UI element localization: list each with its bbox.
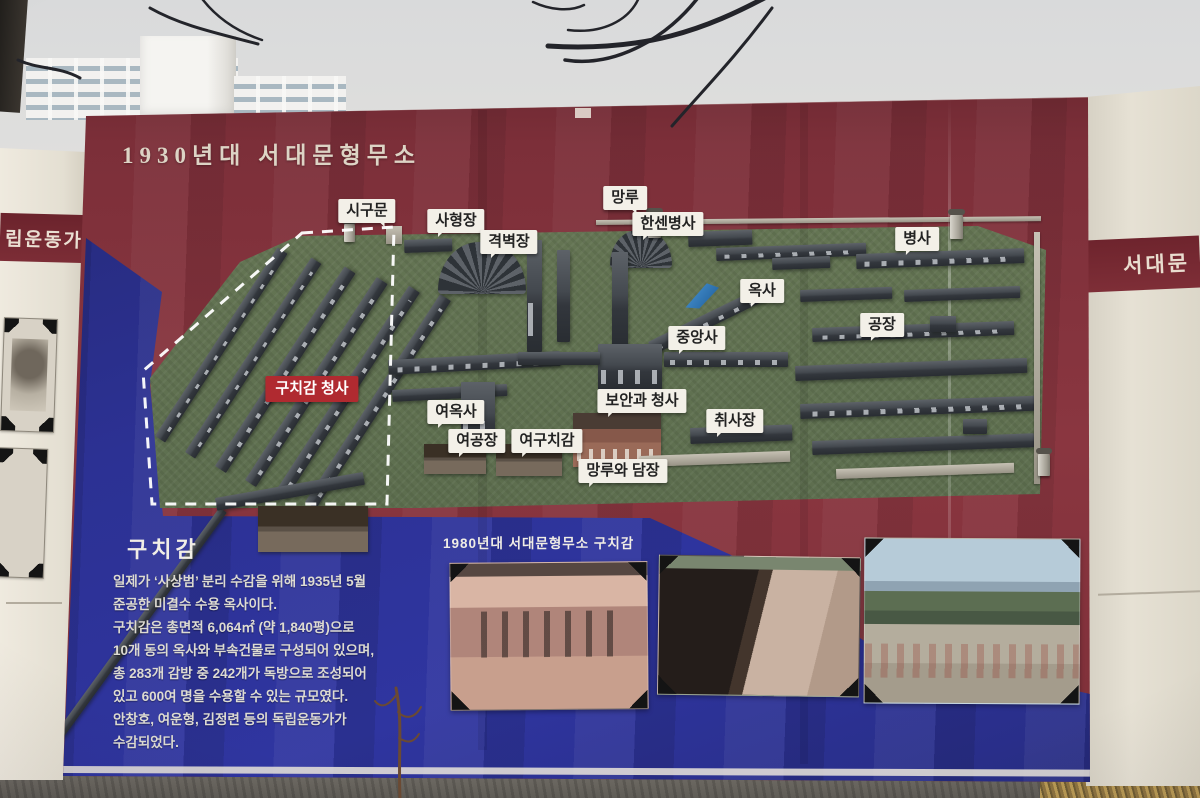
right-sign-title: 서대문 <box>1122 247 1190 280</box>
map-label: 중앙사 <box>668 326 725 350</box>
map-building <box>772 256 830 270</box>
info-paragraph: 일제가 ‘사상범’ 분리 수감을 위해 1935년 5월 준공한 미결수 수용 … <box>113 570 443 754</box>
right-sign-title-band: 서대문 <box>1085 236 1200 293</box>
info-line: 준공한 미결수 수용 옥사이다. <box>113 593 443 616</box>
historic-photo-aerial <box>864 537 1081 704</box>
map-label: 옥사 <box>740 279 784 303</box>
central-hall-building <box>598 344 662 390</box>
billboard: 1930년대 서대문형무소 <box>0 0 1200 798</box>
banner-clip <box>575 108 591 118</box>
map-label: 망루 <box>603 186 647 210</box>
scene-photo: 립운동가 서대문 1930년대 서대문형무소 <box>0 0 1200 798</box>
map-label: 취사장 <box>706 409 763 433</box>
info-line: 있고 600여 명을 수용할 수 있는 규모였다. <box>113 685 443 708</box>
map-label: 한센병사 <box>632 212 703 236</box>
historic-photo-wall <box>657 555 861 698</box>
right-sign-panel <box>1086 0 1200 798</box>
archival-photo <box>0 447 48 579</box>
watchtower <box>344 222 355 242</box>
photo-corner-mounts <box>1 318 57 432</box>
map-label: 사형장 <box>427 209 484 233</box>
info-line: 안창호, 여운형, 김정련 등의 독립운동가가 <box>113 708 443 731</box>
historic-photo-courtyard <box>449 561 648 711</box>
info-line: 구치감은 총면적 6,064㎡ (약 1,840평)으로 <box>113 616 443 639</box>
info-line: 10개 동의 옥사와 부속건물로 구성되어 있으며, <box>113 639 443 662</box>
info-line: 일제가 ‘사상범’ 분리 수감을 위해 1935년 5월 <box>113 570 443 593</box>
map-label: 망루와 담장 <box>578 459 667 483</box>
watchtower <box>950 213 963 239</box>
map-building <box>557 250 570 342</box>
map-building <box>518 352 600 365</box>
map-label: 보안과 청사 <box>597 389 686 413</box>
apartment-roof-tower <box>140 36 236 120</box>
photo-corner-mounts <box>0 448 47 578</box>
photo-corner-mounts <box>658 556 860 697</box>
map-building <box>258 506 368 552</box>
map-building <box>612 252 628 347</box>
billboard-title: 1930년대 서대문형무소 <box>122 136 421 170</box>
watchtower <box>1038 452 1050 476</box>
map-label: 격벽장 <box>480 230 537 254</box>
map-label: 시구문 <box>338 199 395 223</box>
left-sign-title-band: 립운동가 <box>0 213 88 263</box>
photo-section-caption: 1980년대 서대문형무소 구치감 <box>443 532 634 552</box>
archival-photo <box>0 317 58 433</box>
tree-trunk <box>0 0 28 113</box>
left-sign-title: 립운동가 <box>5 223 84 252</box>
map-label: 여옥사 <box>427 400 484 424</box>
map-building <box>930 316 956 332</box>
photo-corner-mounts <box>865 538 1080 703</box>
map-building <box>404 238 452 253</box>
map-label-highlight: 구치감 청사 <box>265 376 358 402</box>
map-label: 공장 <box>860 313 904 337</box>
info-line: 수감되었다. <box>113 731 443 754</box>
photo-corner-mounts <box>450 562 647 710</box>
info-heading: 구치감 <box>127 532 200 564</box>
info-line: 총 283개 감방 중 242개가 독방으로 조성되어 <box>113 662 443 685</box>
map-label: 여구치감 <box>511 429 582 453</box>
left-sign-rule <box>6 602 62 604</box>
map-label: 여공장 <box>448 429 505 453</box>
map-building <box>963 419 987 434</box>
perimeter-wall <box>1034 232 1040 484</box>
map-label: 병사 <box>895 227 939 251</box>
map-building <box>527 240 542 352</box>
